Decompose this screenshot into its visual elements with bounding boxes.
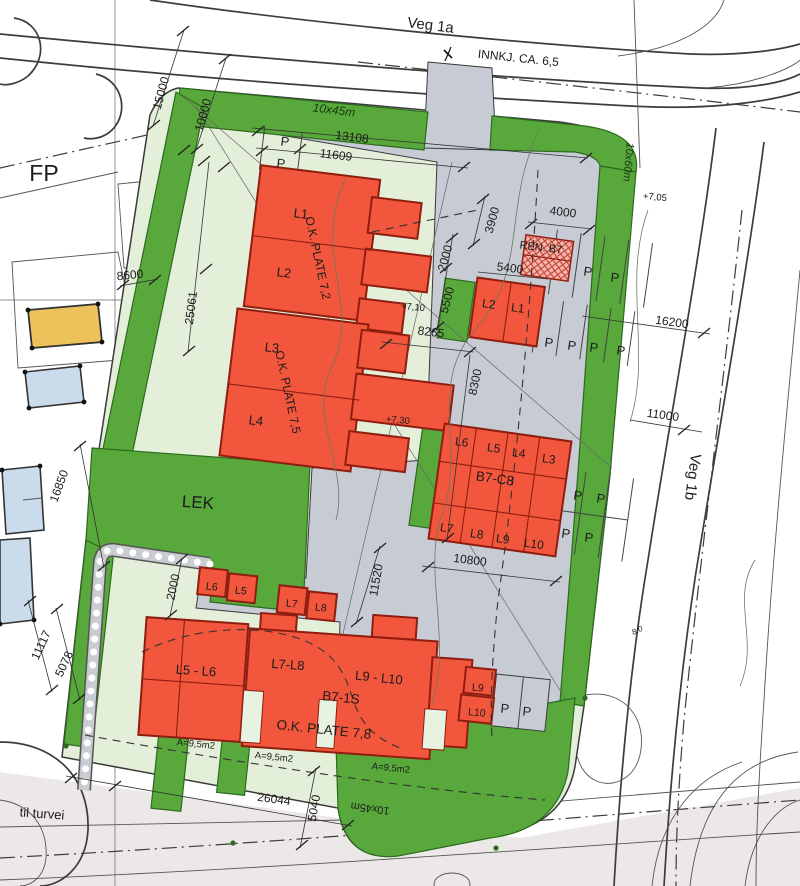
spot-elevation: +7,30 bbox=[385, 414, 410, 427]
unit-label: L4 bbox=[248, 412, 264, 429]
unit-label: L5 bbox=[234, 584, 247, 597]
unit-label: L2 bbox=[276, 264, 292, 281]
existing-blue-building bbox=[25, 366, 84, 408]
unit-label: L4 bbox=[511, 445, 526, 461]
parking-stall-label: P bbox=[280, 134, 290, 150]
unit-label: L8 bbox=[469, 526, 484, 542]
building-b7-small bbox=[469, 278, 545, 347]
unit-label: L10 bbox=[467, 706, 486, 720]
unit-label: L9 bbox=[495, 531, 510, 547]
parking-stall-label: P bbox=[522, 704, 532, 720]
unit-label: L6 bbox=[205, 580, 218, 593]
existing-blue-building bbox=[0, 538, 34, 624]
entrance-driveway bbox=[424, 62, 496, 150]
area-label-fp: FP bbox=[29, 160, 58, 186]
parking-stall-label: P bbox=[276, 156, 286, 172]
unit-label: L6 bbox=[454, 434, 469, 450]
unit-label: L7 bbox=[285, 597, 298, 610]
spot-elevation: +7,10 bbox=[400, 301, 425, 314]
path-note-turvei: til turvei bbox=[19, 804, 65, 822]
parking-stall-label: P bbox=[500, 701, 510, 717]
site-plan-drawing: Veg 1a INNKJ. CA. 6,5 Veg 1b til turvei … bbox=[0, 0, 800, 886]
unit-label: L3 bbox=[541, 451, 556, 467]
dimension: 8600 bbox=[116, 267, 144, 284]
unit-label: L10 bbox=[523, 536, 545, 553]
area-label-lek: LEK bbox=[181, 492, 215, 513]
site-plan-page: Veg 1a INNKJ. CA. 6,5 Veg 1b til turvei … bbox=[0, 0, 800, 886]
unit-label: L7 bbox=[439, 520, 454, 536]
unit-label: L2 bbox=[481, 296, 496, 312]
unit-range-label: L5 - L6 bbox=[175, 662, 216, 680]
unit-range-label: L7-L8 bbox=[271, 656, 305, 673]
unit-label: L1 bbox=[510, 300, 525, 316]
unit-label: L8 bbox=[314, 601, 327, 614]
spot-elevation: +7,05 bbox=[642, 191, 667, 204]
unit-label: L5 bbox=[486, 440, 501, 456]
existing-yellow-building bbox=[28, 304, 102, 348]
unit-label: L9 bbox=[471, 681, 484, 694]
